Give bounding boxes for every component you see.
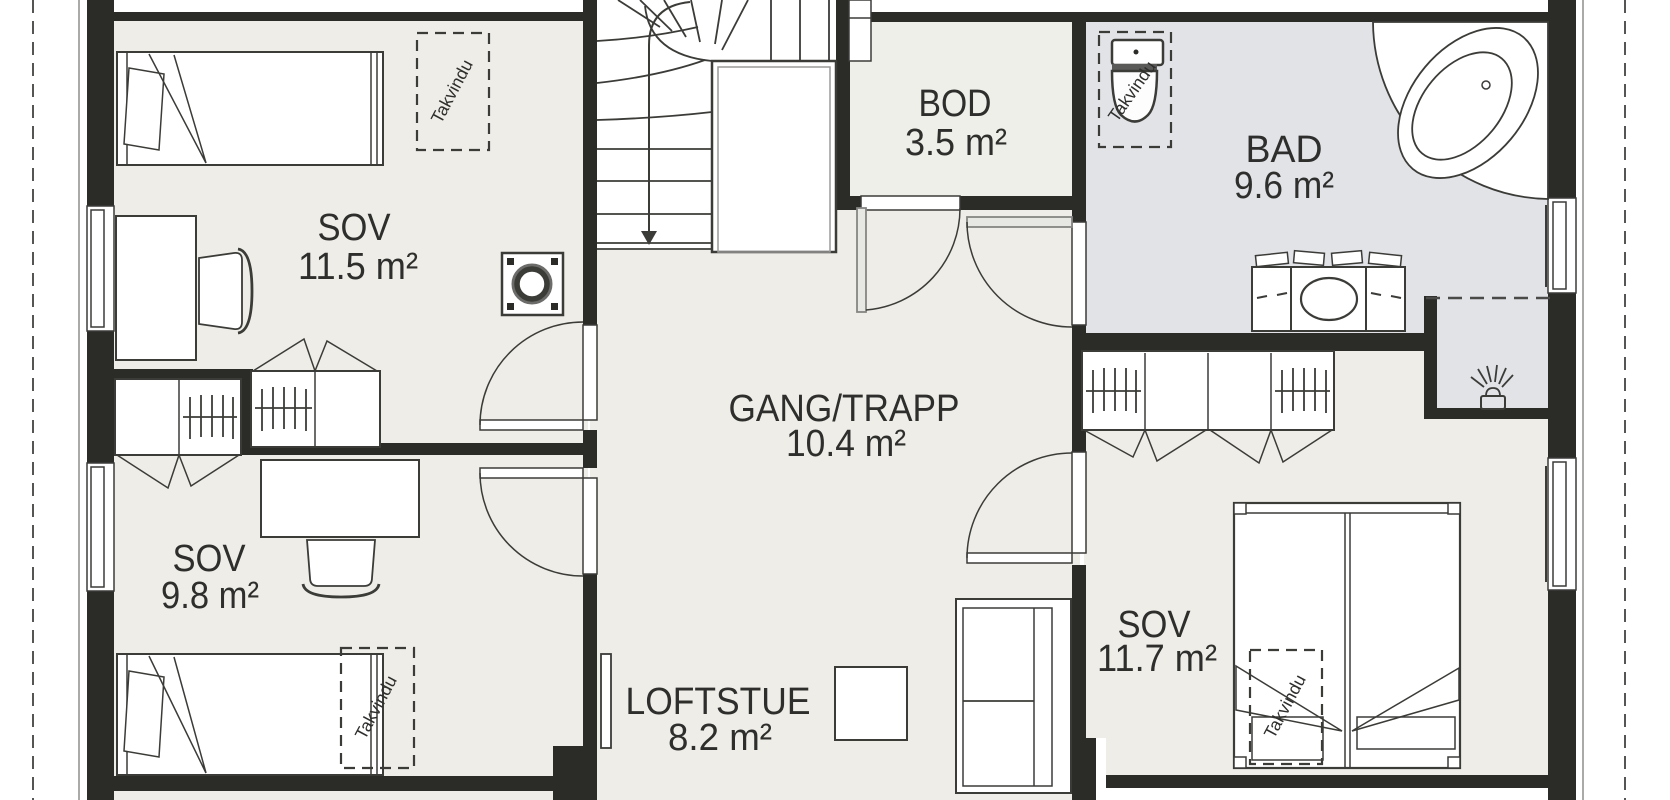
svg-text:SOV: SOV bbox=[318, 207, 392, 249]
svg-text:10.4 m²: 10.4 m² bbox=[786, 423, 906, 465]
svg-text:8.2 m²: 8.2 m² bbox=[668, 717, 772, 759]
svg-text:11.7 m²: 11.7 m² bbox=[1097, 638, 1217, 680]
svg-text:11.5 m²: 11.5 m² bbox=[298, 246, 418, 288]
svg-text:BOD: BOD bbox=[919, 83, 992, 125]
svg-text:SOV: SOV bbox=[173, 538, 247, 580]
svg-text:9.6 m²: 9.6 m² bbox=[1234, 165, 1334, 207]
svg-text:3.5 m²: 3.5 m² bbox=[905, 122, 1007, 164]
svg-text:9.8 m²: 9.8 m² bbox=[161, 575, 259, 617]
